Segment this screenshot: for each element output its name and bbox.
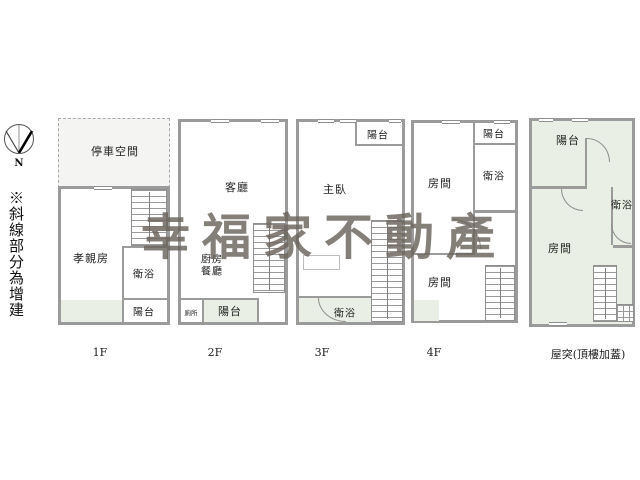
window-mark [318,119,334,123]
door-arc [611,224,631,244]
window-mark [94,186,112,190]
room-label-bath: 衛浴 [133,266,155,281]
window-mark [261,119,279,123]
room-label-room: 房間 [548,240,572,256]
room-label-bath: 衛浴 [611,197,633,212]
room-label-balcony: 陽台 [483,126,505,141]
room-label-bath: 衛浴 [483,168,505,183]
wall [181,298,258,300]
room-label-living: 客廳 [225,179,249,195]
window-mark [549,322,567,326]
side-note-text: ※斜線部分為增建 [6,190,27,318]
wall [257,298,259,322]
floor-label-4f: 4F [427,346,442,359]
wall [613,245,632,248]
floor-label-2f: 2F [208,346,223,359]
wall [202,298,204,322]
door-arc [561,189,583,211]
room-label-balcony: 陽台 [556,132,580,148]
wall [122,298,167,300]
wall [473,143,515,145]
wall [355,144,402,146]
window-mark [211,119,229,123]
addition-area [61,300,122,322]
window-mark [539,118,553,122]
compass-icon [1,123,37,157]
stairs-roof [593,265,617,322]
floor-label-1f: 1F [93,346,108,359]
wall [355,122,357,146]
room-label-bath: 衛浴 [334,305,356,320]
room-label-toilet: 廁所 [185,307,198,317]
room-label-balcony: 陽台 [218,303,242,319]
window-mark [389,119,401,123]
room-label-parking: 停車空間 [91,143,139,159]
addition-area [414,300,439,321]
floorplan-canvas: N ※斜線部分為增建 停車空間 孝親房 衛浴 陽台 客廳 廚房 餐廳 廁所 陽台 [0,0,640,480]
stairs-4f [485,265,515,321]
room-label-balcony: 陽台 [367,127,389,142]
stairs-landing-grid [616,304,634,322]
compass-north-label: N [1,158,37,169]
window-mark [494,120,510,124]
wall [122,246,124,322]
room-label-balcony: 陽台 [133,304,155,319]
plan-roof: 陽台 衛浴 房間 [529,118,635,327]
window-mark [442,120,460,124]
door-arc [587,138,610,162]
room-label-room-back: 房間 [428,274,452,290]
room-label-master: 主臥 [323,181,347,197]
room-label-parent-room: 孝親房 [73,250,109,266]
window-mark [572,118,588,122]
brand-watermark: 幸福家不動產 [141,213,507,262]
room-label-room-front: 房間 [428,175,452,191]
window-mark [340,119,356,123]
floor-label-3f: 3F [315,346,330,359]
parking-area-1f: 停車空間 [58,118,170,188]
floor-label-roof: 屋突(頂樓加蓋) [551,346,626,362]
